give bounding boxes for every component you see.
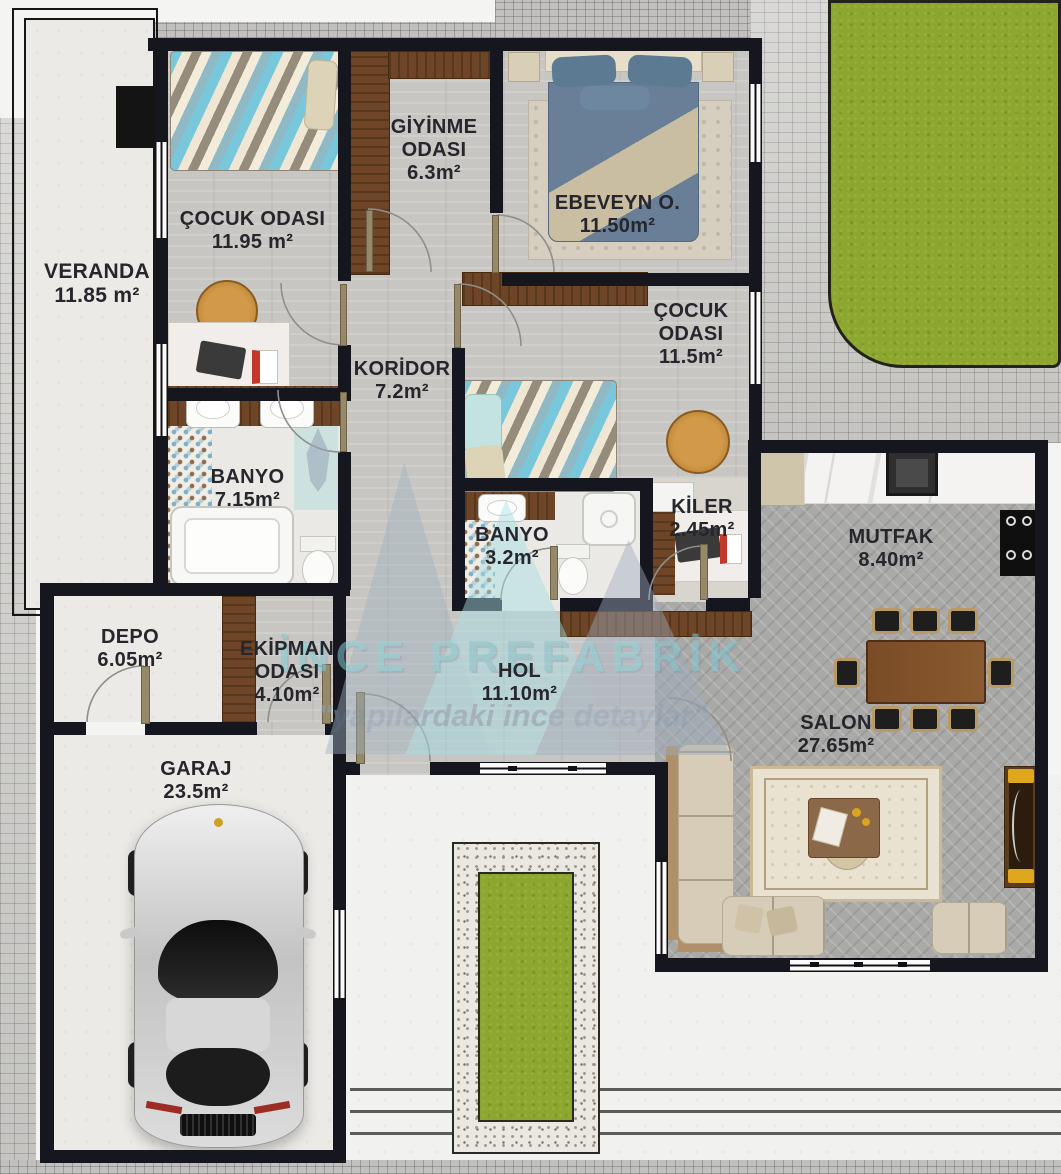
room-area: 2.45m²	[652, 519, 752, 542]
window	[655, 862, 668, 954]
door-leaf	[366, 210, 373, 272]
room-label-cocuk-2: ÇOCUK ODASI 11.5m²	[642, 300, 740, 368]
room-name: SALON	[775, 712, 897, 735]
room-label-giyinme: GİYİNME ODASI 6.3m²	[378, 116, 490, 184]
room-area: 27.65m²	[775, 735, 897, 758]
door-leaf	[454, 284, 461, 348]
room-name: GİYİNME ODASI	[378, 116, 490, 162]
door-leaf	[700, 544, 708, 600]
room-name: EKİPMAN ODASI	[228, 638, 346, 684]
door-arc	[649, 546, 703, 600]
door-arc	[668, 698, 731, 761]
room-area: 8.40m²	[826, 549, 956, 572]
room-name: DEPO	[70, 626, 190, 649]
room-area: 3.2m²	[458, 547, 566, 570]
window	[749, 84, 762, 162]
room-area: 11.95 m²	[155, 231, 350, 254]
window	[155, 344, 168, 436]
room-label-depo: DEPO 6.05m²	[70, 626, 190, 672]
sliding-door-window	[790, 958, 930, 972]
door-arc	[281, 283, 343, 345]
room-name: KİLER	[652, 496, 752, 519]
window-tick	[508, 766, 517, 771]
room-area: 11.85 m²	[32, 284, 162, 308]
window-tick	[568, 766, 577, 771]
window	[749, 292, 762, 384]
room-name: HOL	[462, 660, 577, 683]
door-arc	[363, 694, 430, 761]
room-name: EBEVEYN O.	[535, 192, 700, 215]
window-tick	[810, 962, 819, 967]
window	[480, 762, 606, 775]
door-leaf	[141, 666, 150, 724]
room-area: 6.05m²	[70, 649, 190, 672]
room-area: 4.10m²	[228, 684, 346, 707]
window	[333, 910, 346, 998]
room-area: 11.10m²	[462, 683, 577, 706]
room-name: ÇOCUK ODASI	[642, 300, 740, 346]
door-arc	[87, 666, 144, 722]
room-area: 7.15m²	[185, 489, 310, 512]
room-area: 11.5m²	[642, 346, 740, 369]
room-area: 11.50m²	[535, 215, 700, 238]
floor-plan: VERANDA 11.85 m² ÇOCUK ODASI 11.95 m² Gİ…	[0, 0, 1061, 1174]
window-tick	[898, 962, 907, 967]
door-arc	[459, 284, 521, 346]
room-name: ÇOCUK ODASI	[155, 208, 350, 231]
window-tick	[854, 962, 863, 967]
room-label-hol: HOL 11.10m²	[462, 660, 577, 706]
room-area: 6.3m²	[378, 162, 490, 185]
room-label-banyo-2: BANYO 3.2m²	[458, 524, 566, 570]
room-label-cocuk-1: ÇOCUK ODASI 11.95 m²	[155, 208, 350, 254]
room-name: KORİDOR	[342, 358, 462, 381]
room-label-veranda: VERANDA 11.85 m²	[32, 260, 162, 308]
room-name: BANYO	[185, 466, 310, 489]
room-area: 23.5m²	[136, 781, 256, 804]
room-name: GARAJ	[136, 758, 256, 781]
room-label-ebeveyn: EBEVEYN O. 11.50m²	[535, 192, 700, 238]
door-arc	[278, 390, 340, 452]
room-label-salon: SALON 27.65m²	[775, 712, 897, 758]
room-name: VERANDA	[32, 260, 162, 284]
room-name: BANYO	[458, 524, 566, 547]
room-label-garaj: GARAJ 23.5m²	[136, 758, 256, 804]
room-name: MUTFAK	[826, 526, 956, 549]
door-leaf	[356, 692, 365, 764]
room-label-mutfak: MUTFAK 8.40m²	[826, 526, 956, 572]
room-label-kiler: KİLER 2.45m²	[652, 496, 752, 542]
room-label-ekipman: EKİPMAN ODASI 4.10m²	[228, 638, 346, 706]
door-leaf	[492, 215, 499, 273]
room-area: 7.2m²	[342, 381, 462, 404]
door-leaf	[340, 284, 347, 346]
room-label-koridor: KORİDOR 7.2m²	[342, 358, 462, 404]
room-label-banyo-1: BANYO 7.15m²	[185, 466, 310, 512]
door-arc	[368, 209, 431, 272]
